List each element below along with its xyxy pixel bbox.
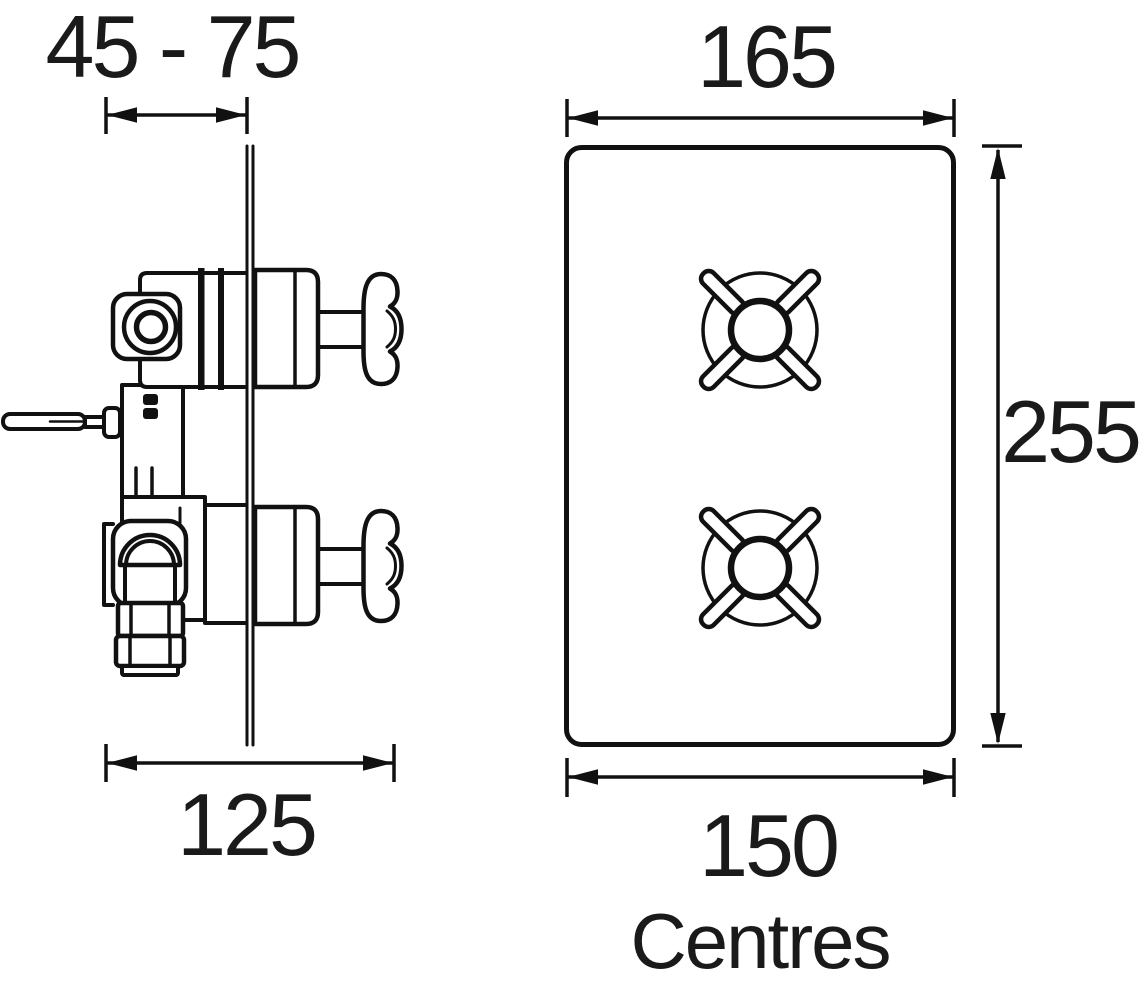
side-view: [3, 146, 402, 745]
cartridge-and-handle-lower: [255, 507, 402, 624]
dim-depth-range: 45 - 75: [46, 0, 299, 134]
arrowhead-right-icon: [216, 107, 246, 122]
face-plate: [567, 148, 954, 745]
arrowhead-right-icon: [923, 769, 953, 784]
dim-plate-height-label: 255: [1001, 382, 1139, 481]
dim-depth-range-label: 45 - 75: [46, 0, 299, 96]
flange-plate-bar: [218, 268, 224, 390]
technical-drawing-page: 45 - 75 125 165 255: [0, 0, 1143, 999]
arrowhead-right-icon: [363, 755, 393, 770]
arrowhead-left-icon: [107, 755, 137, 770]
body-detail-marks: [143, 394, 158, 405]
arrowhead-down-icon: [990, 713, 1005, 744]
dim-overall-depth-label: 125: [177, 775, 315, 874]
upper-valve-body: [113, 268, 245, 390]
arrowhead-right-icon: [923, 110, 953, 125]
dim-plate-height: 255: [982, 146, 1139, 746]
wall-plate-edge: [247, 146, 253, 745]
front-view: [567, 148, 954, 745]
compression-fitting: [116, 603, 184, 675]
dim-centres-value-label: 150: [699, 796, 837, 895]
arrowhead-up-icon: [990, 148, 1005, 179]
arrowhead-left-icon: [568, 110, 598, 125]
dim-centres-word-label: Centres: [630, 897, 889, 985]
dim-plate-width-label: 165: [697, 7, 835, 106]
cartridge-body: [255, 270, 318, 387]
cross-handle-top: [698, 268, 822, 392]
cartridge-and-handle: [255, 270, 402, 387]
handle-stem: [315, 312, 367, 347]
dim-plate-width: 165: [567, 7, 954, 137]
cross-handle-bottom: [698, 506, 822, 630]
flange-plate-bar: [198, 268, 205, 390]
dim-centres: 150 Centres: [567, 758, 954, 985]
arrowhead-left-icon: [568, 769, 598, 784]
valve-body-column: [122, 385, 183, 502]
lower-valve-body: [104, 497, 245, 675]
lever-handle: [3, 408, 120, 437]
dim-overall-depth: 125: [106, 744, 394, 874]
shower-valve-dimension-drawing: 45 - 75 125 165 255: [0, 0, 1143, 999]
arrowhead-left-icon: [107, 107, 137, 122]
